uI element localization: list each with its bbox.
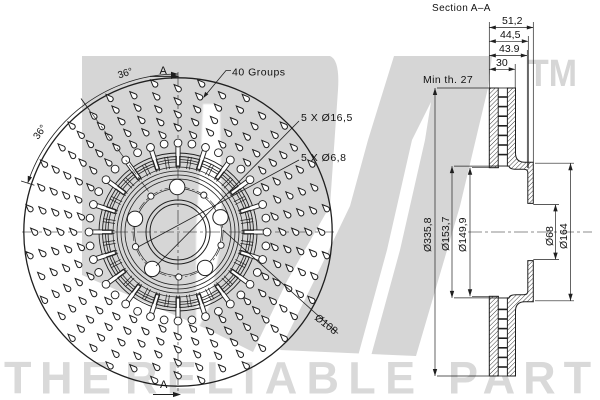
svg-text:Ø153,7: Ø153,7 [440, 216, 452, 251]
svg-text:RELIABLE: RELIABLE [125, 353, 424, 400]
svg-text:Ø149,9: Ø149,9 [457, 217, 469, 252]
svg-text:5 X Ø16,5: 5 X Ø16,5 [301, 112, 353, 124]
svg-text:51,2: 51,2 [502, 15, 523, 27]
svg-text:43.9: 43.9 [499, 43, 520, 55]
svg-text:40 Groups: 40 Groups [232, 67, 286, 79]
svg-text:44,5: 44,5 [500, 29, 521, 41]
svg-text:A: A [160, 379, 168, 391]
svg-text:5 X Ø6,8: 5 X Ø6,8 [301, 152, 346, 164]
svg-text:THE: THE [4, 353, 120, 400]
svg-text:36°: 36° [32, 123, 50, 142]
svg-text:Ø68: Ø68 [544, 226, 556, 246]
svg-text:Section A–A: Section A–A [432, 3, 491, 14]
svg-text:TM: TM [528, 53, 577, 95]
svg-text:Ø335,8: Ø335,8 [422, 217, 434, 252]
svg-text:Ø164: Ø164 [558, 223, 570, 249]
svg-text:A: A [160, 65, 168, 77]
svg-text:30: 30 [496, 57, 508, 69]
svg-text:Min th. 27: Min th. 27 [423, 74, 473, 86]
